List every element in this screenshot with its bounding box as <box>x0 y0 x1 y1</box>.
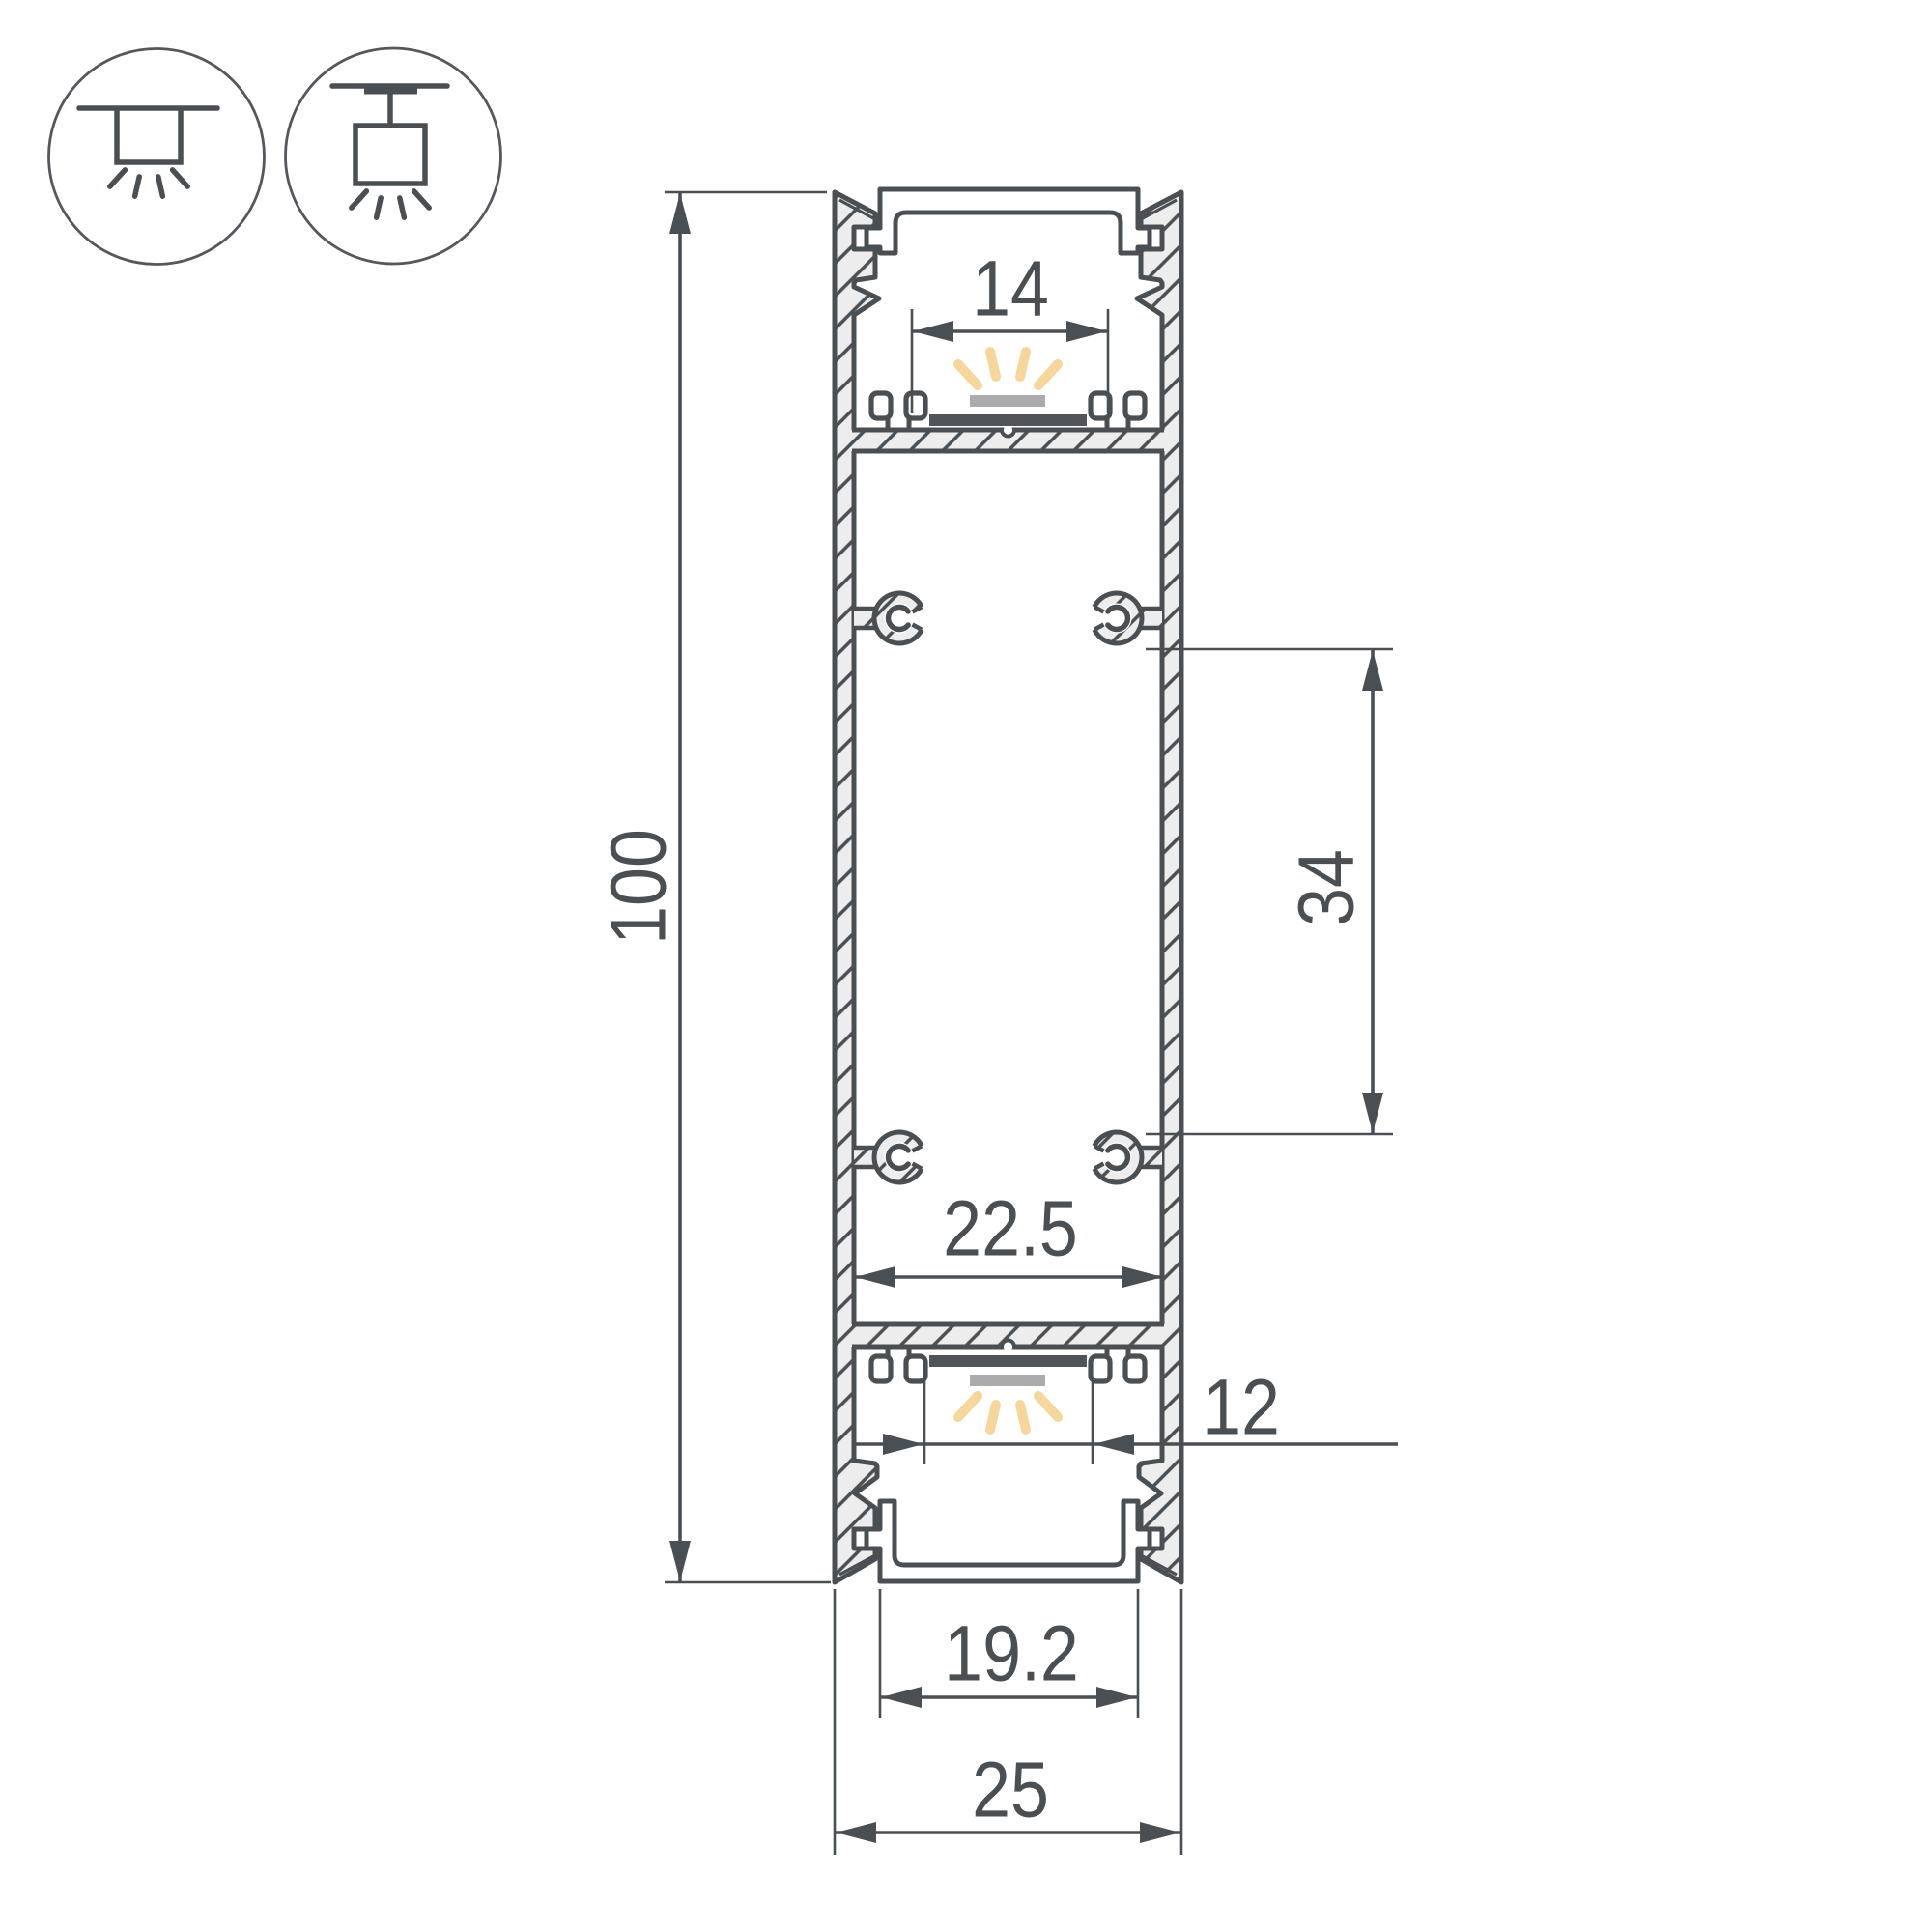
svg-text:22.5: 22.5 <box>943 1184 1078 1273</box>
svg-text:19.2: 19.2 <box>944 1609 1079 1698</box>
svg-text:34: 34 <box>1282 849 1371 926</box>
svg-text:14: 14 <box>972 244 1049 333</box>
svg-text:25: 25 <box>972 1746 1049 1834</box>
svg-text:100: 100 <box>594 829 683 945</box>
svg-text:12: 12 <box>1203 1363 1280 1452</box>
